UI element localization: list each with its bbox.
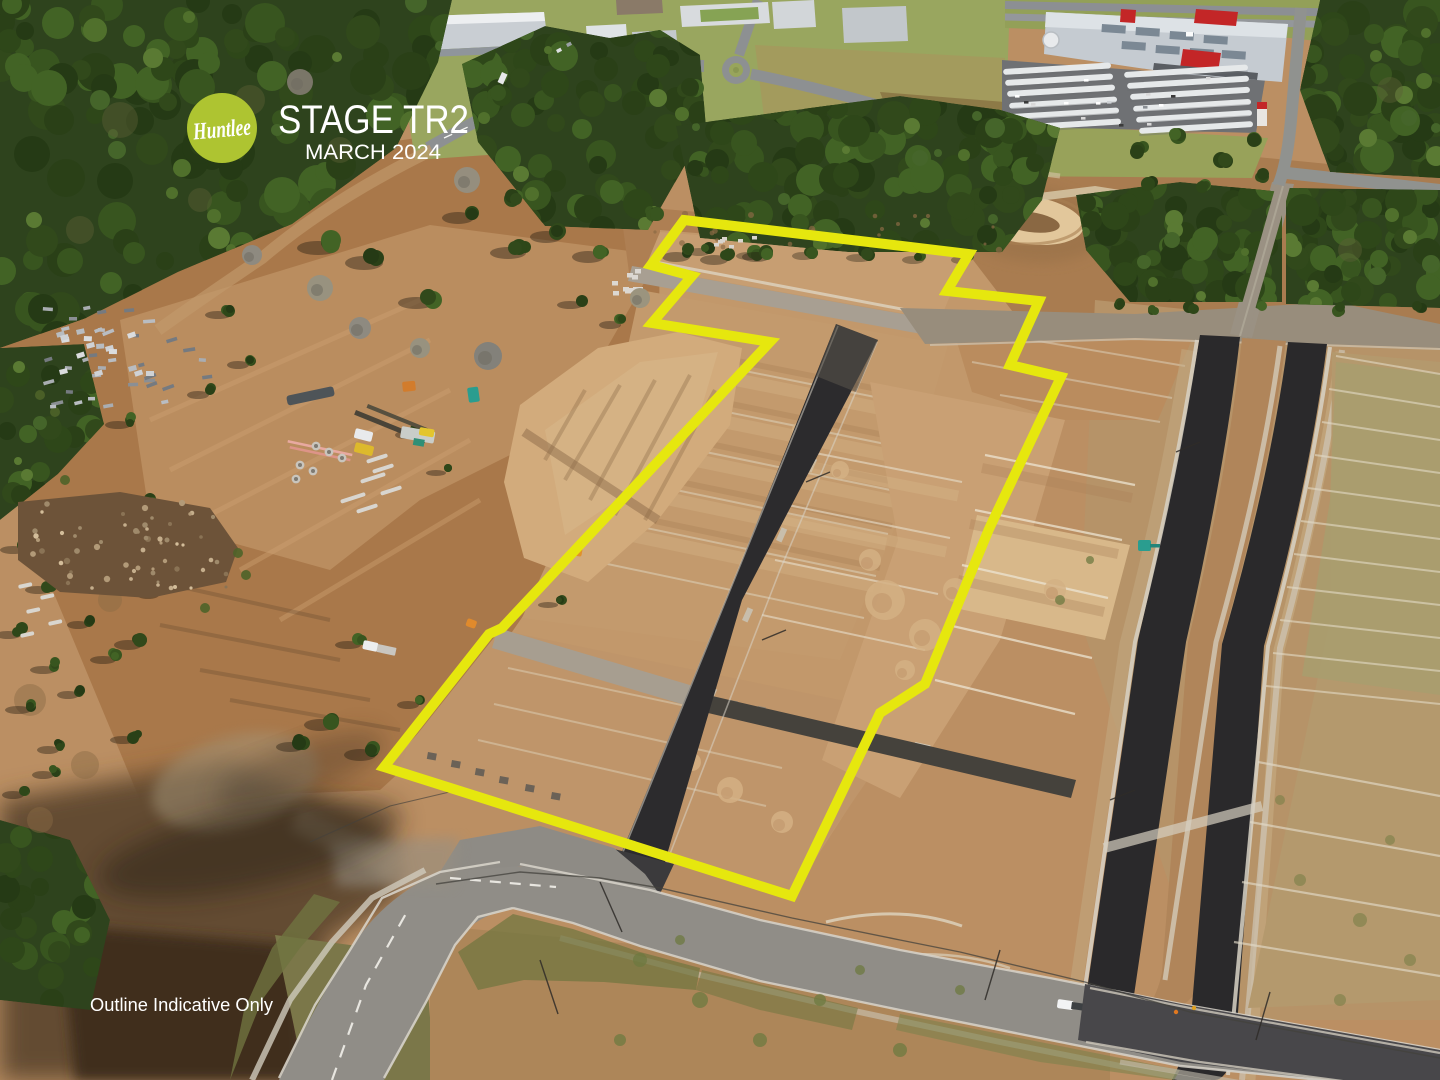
svg-text:Outline Indicative Only: Outline Indicative Only [90,995,273,1015]
svg-text:Huntlee: Huntlee [191,115,252,146]
svg-text:MARCH 2024: MARCH 2024 [305,141,441,164]
svg-text:STAGE TR2: STAGE TR2 [278,98,469,142]
